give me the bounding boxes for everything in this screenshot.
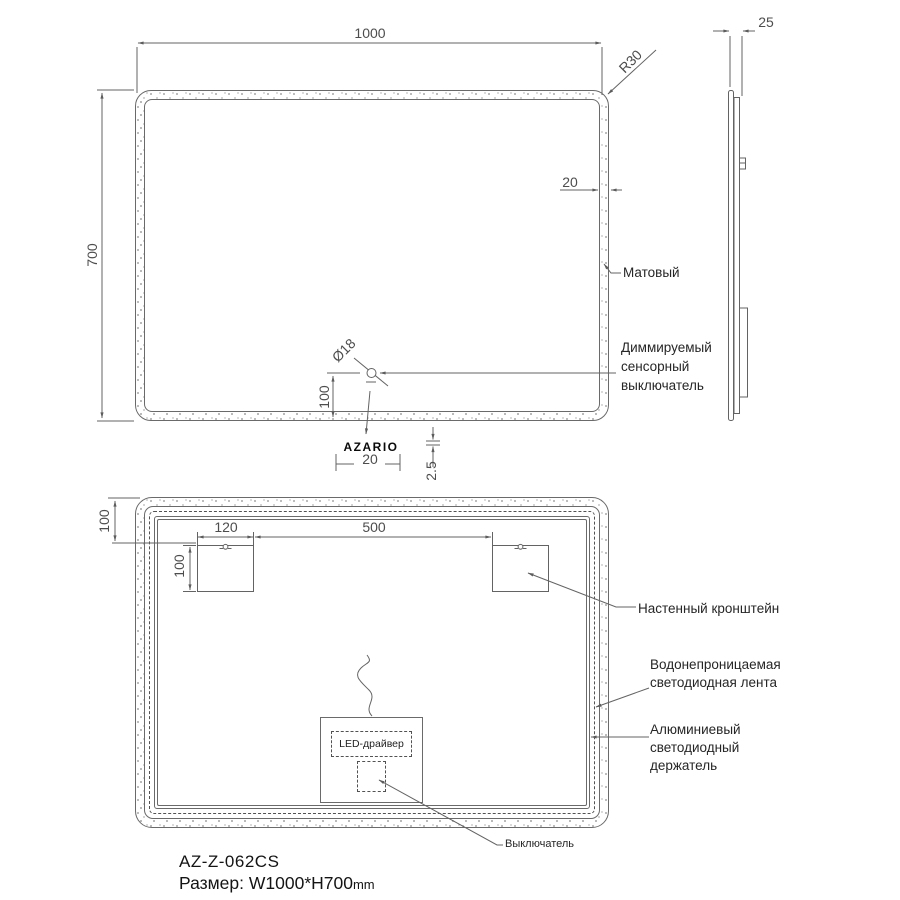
model-code: AZ-Z-062CS	[179, 852, 399, 872]
dim-25-text: 25	[751, 15, 781, 31]
switch-label-leader	[379, 780, 503, 845]
wall-bracket-right	[493, 546, 549, 592]
matte-leader	[604, 264, 621, 273]
dim-20-logo-text: 20	[355, 452, 385, 467]
dim-700-text: 700	[85, 235, 101, 275]
strip-label: Водонепроницаемая светодиодная лента	[650, 656, 822, 694]
size-text: Размер: W1000*H700	[179, 873, 353, 893]
size-caption: Размер: W1000*H700mm	[179, 873, 479, 895]
sensor-label: Диммируемый сенсорный выключатель	[621, 338, 746, 398]
keyhole-left-circle	[223, 544, 228, 549]
strip-label-leader	[596, 688, 649, 707]
dim-20-frame-text: 20	[556, 175, 584, 189]
dim-120-text: 120	[207, 520, 245, 535]
technical-drawing: LED-драйвер	[0, 0, 900, 900]
bracket-label: Настенный кронштейн	[638, 599, 823, 615]
dim-100-bracket-text: 100	[172, 546, 186, 586]
sensor-logo-arrow	[366, 391, 370, 434]
sensor-circle	[367, 369, 376, 378]
dim-100-top-text: 100	[97, 501, 111, 541]
keyhole-right-circle	[518, 544, 523, 549]
dim-500-text: 500	[354, 520, 394, 535]
holder-label: Алюминиевый светодиодный держатель	[650, 721, 778, 777]
switch-label: Выключатель	[505, 838, 605, 852]
matte-label: Матовый	[623, 263, 713, 279]
dim-1000-text: 1000	[340, 26, 400, 42]
size-unit: mm	[353, 877, 375, 892]
dim-2-5-text: 2.5	[424, 451, 438, 491]
power-cable	[357, 655, 372, 716]
dim-100-sensor-text: 100	[317, 377, 331, 417]
wall-bracket-left	[198, 546, 254, 592]
